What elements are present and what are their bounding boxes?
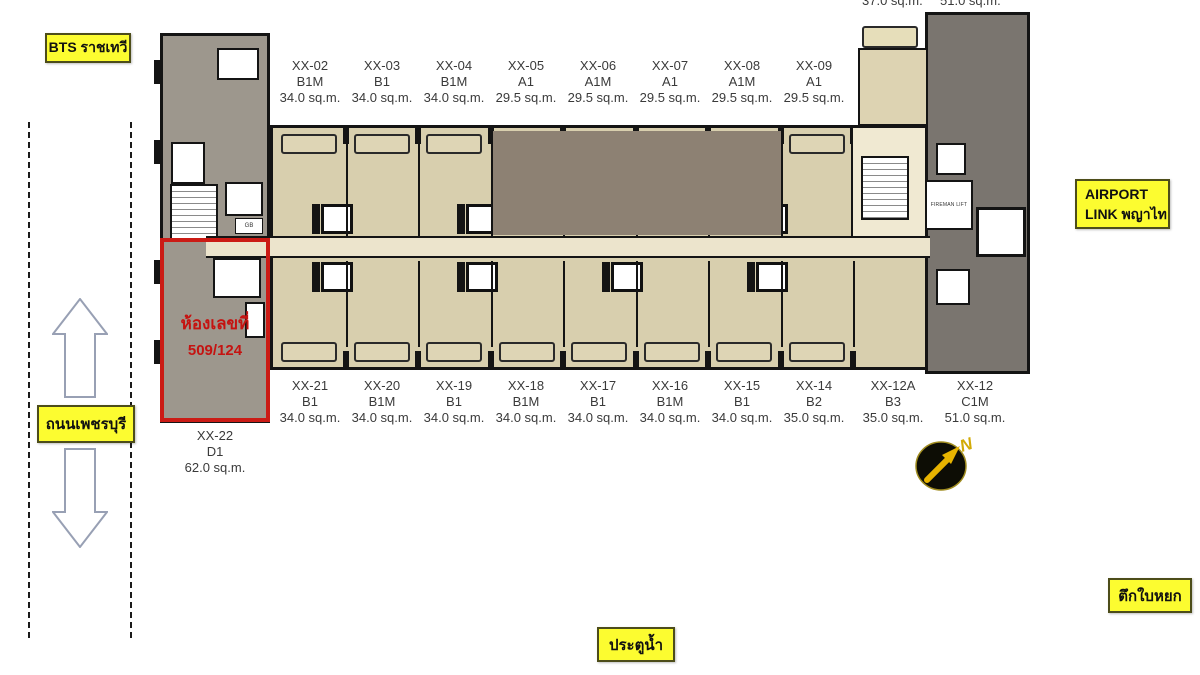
wall-stub — [154, 140, 162, 164]
unit-type: C1M — [928, 394, 1022, 410]
unit-label: XX-05 A1 29.5 sq.m. — [490, 58, 562, 106]
unit-label: XX-07 A1 29.5 sq.m. — [634, 58, 706, 106]
unit-area: 29.5 sq.m. — [634, 90, 706, 106]
unit-area: 34.0 sq.m. — [634, 410, 706, 426]
label-airport-link: AIRPORT LINK พญาไท — [1075, 179, 1170, 229]
stairwell — [861, 156, 909, 220]
unit-divider — [418, 132, 420, 238]
unit-area: 34.0 sq.m. — [418, 410, 490, 426]
unit-code: XX-02 — [274, 58, 346, 74]
highlight-room-number: 509/124 — [164, 342, 266, 359]
unit-type: B3 — [850, 394, 936, 410]
unit-type: B2 — [778, 394, 850, 410]
unit-type: B1M — [490, 394, 562, 410]
unit-divider — [636, 261, 638, 347]
lift-shaft — [321, 204, 353, 234]
wall-stub — [415, 351, 421, 367]
unit-type: B1M — [346, 394, 418, 410]
road-dashed-line-left — [28, 122, 30, 638]
unit-label: XX-15 B1 34.0 sq.m. — [706, 378, 778, 426]
unit-code: XX-17 — [562, 378, 634, 394]
road-dashed-line-right — [130, 122, 132, 638]
unit-type: B1 — [562, 394, 634, 410]
unit-area: 35.0 sq.m. — [778, 410, 850, 426]
unit-code: XX-06 — [562, 58, 634, 74]
unit-code: XX-16 — [634, 378, 706, 394]
unit-code: XX-14 — [778, 378, 850, 394]
unit-type: B1M — [274, 74, 346, 90]
unit-divider — [491, 261, 493, 347]
highlighted-room-509-124: ห้องเลขที่ 509/124 — [160, 238, 270, 422]
unit-label: XX-14 B2 35.0 sq.m. — [778, 378, 850, 426]
wall-stub — [602, 262, 610, 292]
unit-code: XX-09 — [778, 58, 850, 74]
wall-stub — [633, 351, 639, 367]
unit-code: XX-03 — [346, 58, 418, 74]
unit-type: B1 — [274, 394, 346, 410]
unit-area: 34.0 sq.m. — [274, 90, 346, 106]
unit-divider — [708, 261, 710, 347]
unit-code: XX-15 — [706, 378, 778, 394]
wall-stub — [154, 60, 162, 84]
unit-type: A1 — [778, 74, 850, 90]
label-airport-line1: AIRPORT — [1085, 184, 1148, 204]
wall-stub — [747, 262, 755, 292]
unit-label: XX-16 B1M 34.0 sq.m. — [634, 378, 706, 426]
balcony — [426, 134, 482, 154]
unit-area: 29.5 sq.m. — [778, 90, 850, 106]
arrow-down-icon — [52, 448, 108, 548]
unit-divider — [853, 261, 855, 347]
unit-area: 34.0 sq.m. — [562, 410, 634, 426]
unit-type: B1 — [706, 394, 778, 410]
balcony — [789, 134, 845, 154]
unit-type: A1M — [562, 74, 634, 90]
unit-divider — [346, 132, 348, 238]
unit-area: 34.0 sq.m. — [418, 90, 490, 106]
balcony — [354, 134, 410, 154]
unit-divider — [563, 261, 565, 347]
unit-area: 29.5 sq.m. — [490, 90, 562, 106]
unit-code: XX-08 — [706, 58, 778, 74]
unit-type: B1 — [346, 74, 418, 90]
lift-shaft — [321, 262, 353, 292]
unit-type: A1M — [706, 74, 778, 90]
balcony — [571, 342, 627, 362]
unit-label: XX-22 D1 62.0 sq.m. — [179, 428, 251, 476]
unit-code: XX-12 — [928, 378, 1022, 394]
unit-type: B1 — [418, 394, 490, 410]
unit-label: XX-17 B1 34.0 sq.m. — [562, 378, 634, 426]
bathroom-box — [217, 48, 259, 80]
unit-divider — [418, 261, 420, 347]
unit-label: XX-06 A1M 29.5 sq.m. — [562, 58, 634, 106]
unit-code: XX-04 — [418, 58, 490, 74]
unit-area: 62.0 sq.m. — [179, 460, 251, 476]
wall-stub — [778, 351, 784, 367]
unit-area: 34.0 sq.m. — [490, 410, 562, 426]
wall-stub — [457, 204, 465, 234]
unit-divider — [781, 132, 783, 238]
unit-label: XX-08 A1M 29.5 sq.m. — [706, 58, 778, 106]
wall-stub — [850, 351, 856, 367]
label-airport-line2: LINK พญาไท — [1085, 204, 1167, 224]
arrow-up-icon — [52, 298, 108, 398]
balcony — [862, 26, 918, 48]
partial-area-right: 51.0 sq.m. — [940, 0, 1001, 8]
unit-area: 29.5 sq.m. — [706, 90, 778, 106]
unit-divider — [781, 261, 783, 347]
label-bts-ratchathewi: BTS ราชเทวี — [45, 33, 131, 63]
unit-label: XX-02 B1M 34.0 sq.m. — [274, 58, 346, 106]
lift-box — [976, 207, 1026, 257]
label-baiyoke-tower: ตึกใบหยก — [1108, 578, 1192, 613]
unit-label: XX-12 C1M 51.0 sq.m. — [928, 378, 1022, 426]
lift-shaft — [466, 262, 498, 292]
lift-box — [225, 182, 263, 216]
gb-box: GB — [235, 218, 263, 234]
wall-stub — [560, 351, 566, 367]
unit-area: 34.0 sq.m. — [346, 410, 418, 426]
unit-code: XX-21 — [274, 378, 346, 394]
unit-area: 34.0 sq.m. — [274, 410, 346, 426]
wall-stub — [488, 351, 494, 367]
lift-shaft — [611, 262, 643, 292]
unit-label: XX-18 B1M 34.0 sq.m. — [490, 378, 562, 426]
unit-label: XX-12A B3 35.0 sq.m. — [850, 378, 936, 426]
unit-label: XX-04 B1M 34.0 sq.m. — [418, 58, 490, 106]
unit-area: 34.0 sq.m. — [706, 410, 778, 426]
unit-label: XX-19 B1 34.0 sq.m. — [418, 378, 490, 426]
partial-area-left: 37.0 sq.m. — [862, 0, 923, 8]
unit-divider — [346, 261, 348, 347]
unit-label: XX-21 B1 34.0 sq.m. — [274, 378, 346, 426]
unit-code: XX-22 — [179, 428, 251, 444]
floor-plan-screenshot: 37.0 sq.m. 51.0 sq.m. BTS ราชเทวี AIRPOR… — [0, 0, 1200, 675]
wall-stub — [343, 351, 349, 367]
bathroom-box — [171, 142, 205, 184]
balcony — [426, 342, 482, 362]
unit-code: XX-07 — [634, 58, 706, 74]
unit-code: XX-05 — [490, 58, 562, 74]
balcony — [789, 342, 845, 362]
unit-label: XX-20 B1M 34.0 sq.m. — [346, 378, 418, 426]
compass-north-icon: N — [910, 434, 980, 494]
balcony — [354, 342, 410, 362]
dark-units-zone — [493, 131, 781, 235]
highlight-title: ห้องเลขที่ — [164, 310, 266, 337]
unit-label: XX-03 B1 34.0 sq.m. — [346, 58, 418, 106]
label-pratunam: ประตูน้ำ — [597, 627, 675, 662]
corner-unit — [858, 48, 928, 126]
lift-box — [936, 269, 970, 305]
unit-label: XX-09 A1 29.5 sq.m. — [778, 58, 850, 106]
unit-code: XX-12A — [850, 378, 936, 394]
wall-stub — [312, 204, 320, 234]
lift-shaft — [756, 262, 788, 292]
balcony — [499, 342, 555, 362]
label-phetchaburi-road: ถนนเพชรบุรี — [37, 405, 135, 443]
fireman-lift-room: FIREMAN LIFT — [925, 180, 973, 230]
corridor — [206, 236, 930, 258]
unit-area: 35.0 sq.m. — [850, 410, 936, 426]
unit-code: XX-19 — [418, 378, 490, 394]
unit-area: 34.0 sq.m. — [346, 90, 418, 106]
balcony — [281, 134, 337, 154]
unit-code: XX-18 — [490, 378, 562, 394]
unit-area: 29.5 sq.m. — [562, 90, 634, 106]
unit-area: 51.0 sq.m. — [928, 410, 1022, 426]
unit-type: B1M — [418, 74, 490, 90]
balcony — [716, 342, 772, 362]
wall-stub — [312, 262, 320, 292]
unit-code: XX-20 — [346, 378, 418, 394]
stairwell — [170, 184, 218, 240]
unit-type: D1 — [179, 444, 251, 460]
wall-stub — [705, 351, 711, 367]
wall-stub — [457, 262, 465, 292]
unit-type: B1M — [634, 394, 706, 410]
balcony — [281, 342, 337, 362]
balcony — [644, 342, 700, 362]
lift-box — [936, 143, 966, 175]
unit-type: A1 — [490, 74, 562, 90]
unit-type: A1 — [634, 74, 706, 90]
